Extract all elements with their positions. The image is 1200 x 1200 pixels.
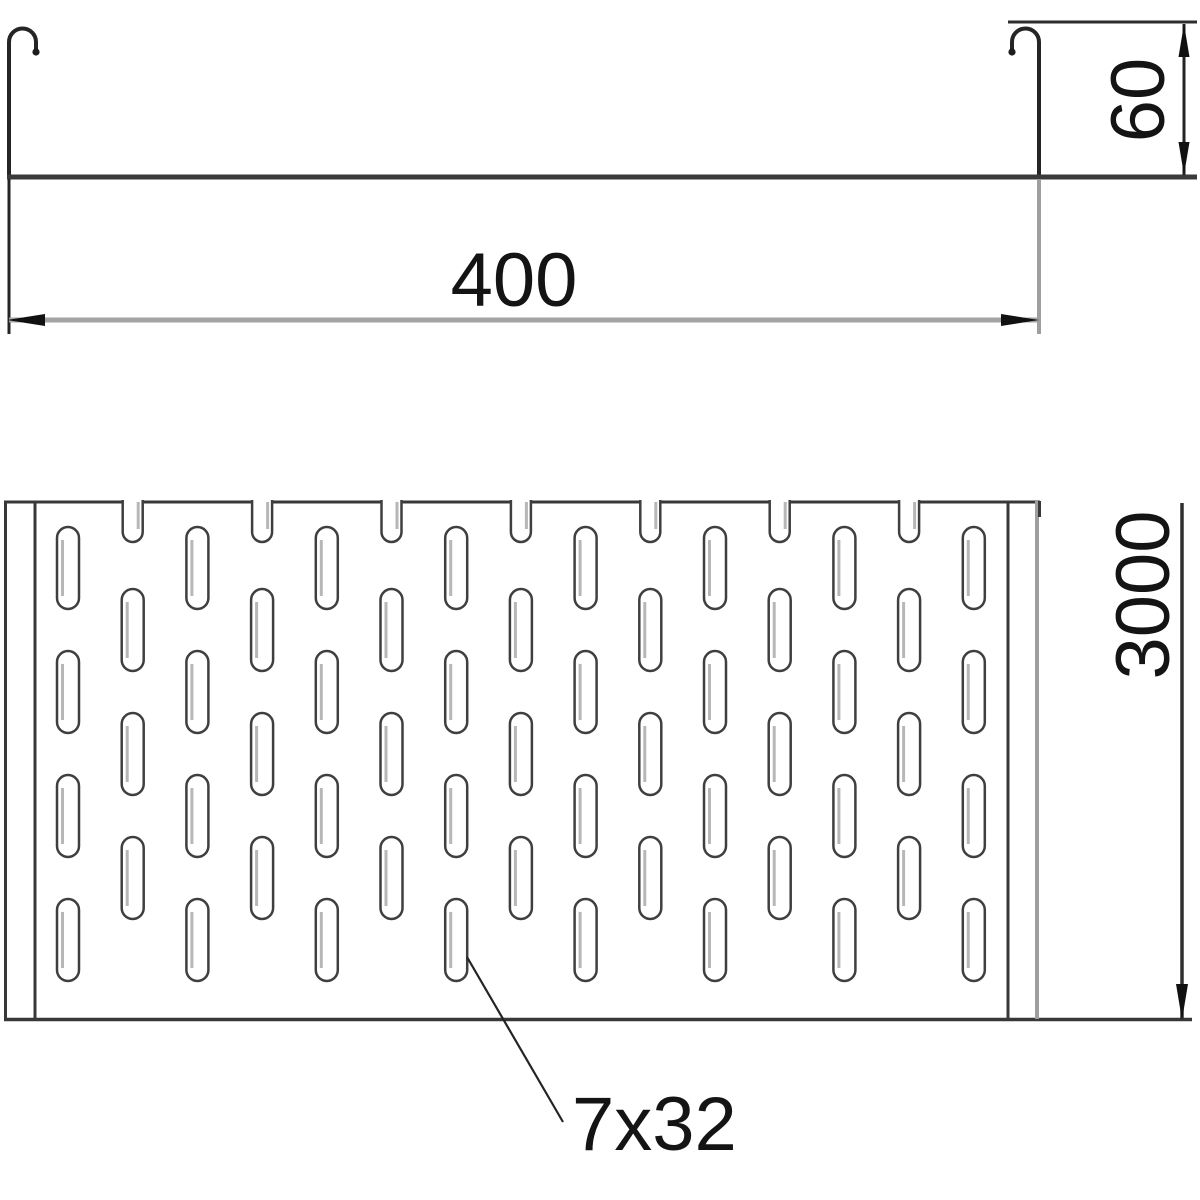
length-dimension: 3000 <box>1101 503 1188 1020</box>
slot <box>316 899 338 981</box>
slot <box>445 899 467 981</box>
slot <box>186 527 208 609</box>
slot <box>704 775 726 857</box>
slot <box>316 527 338 609</box>
plan-view <box>4 500 1192 1021</box>
slot <box>898 713 920 795</box>
slot <box>833 527 855 609</box>
length-dimension-label: 3000 <box>1101 510 1186 679</box>
slot <box>575 775 597 857</box>
slot <box>57 775 79 857</box>
width-dimension: 400 <box>7 179 1039 334</box>
slot <box>122 713 144 795</box>
slot <box>833 651 855 733</box>
width-arrow-right <box>1001 314 1039 326</box>
slot <box>251 837 273 919</box>
slot <box>57 899 79 981</box>
slot <box>769 713 791 795</box>
slot <box>186 899 208 981</box>
slot <box>381 713 403 795</box>
slot <box>704 899 726 981</box>
cross-section-view <box>7 29 1197 178</box>
slot <box>186 651 208 733</box>
tray-left-wall <box>9 29 36 178</box>
slot <box>510 837 532 919</box>
width-dimension-label: 400 <box>451 238 578 323</box>
slot <box>381 837 403 919</box>
slot <box>898 589 920 671</box>
slot <box>575 899 597 981</box>
height-dimension: 60 <box>1008 22 1197 175</box>
slot <box>963 899 985 981</box>
slot <box>445 527 467 609</box>
tray-right-wall <box>1012 29 1039 178</box>
slot <box>575 651 597 733</box>
slot <box>575 527 597 609</box>
slot <box>316 775 338 857</box>
slot <box>704 651 726 733</box>
height-dimension-label: 60 <box>1096 58 1181 143</box>
slot <box>445 651 467 733</box>
slot <box>833 899 855 981</box>
height-arrow-up <box>1179 24 1190 57</box>
slot-size-label: 7x32 <box>572 1082 737 1167</box>
slot <box>445 775 467 857</box>
slot <box>57 651 79 733</box>
slot-callout-leader-line <box>467 957 563 1122</box>
slot <box>122 837 144 919</box>
slot <box>381 589 403 671</box>
slot <box>963 651 985 733</box>
height-arrow-down <box>1179 142 1190 175</box>
slot <box>898 837 920 919</box>
slot <box>833 775 855 857</box>
length-arrow-down <box>1176 984 1188 1020</box>
tray-left-wall-bead <box>32 48 39 55</box>
slot <box>122 589 144 671</box>
perforation-pattern <box>57 500 985 981</box>
slot <box>639 589 661 671</box>
slot-size-callout: 7x32 <box>467 957 737 1167</box>
slot <box>57 527 79 609</box>
tray-right-wall-bead <box>1008 48 1015 55</box>
slot <box>704 527 726 609</box>
width-arrow-left <box>7 314 45 326</box>
slot <box>251 713 273 795</box>
slot <box>251 589 273 671</box>
slot <box>963 527 985 609</box>
slot <box>639 837 661 919</box>
slot <box>510 713 532 795</box>
slot <box>769 837 791 919</box>
slot <box>639 713 661 795</box>
technical-drawing: 60 400 3000 <box>0 0 1200 1200</box>
slot <box>769 589 791 671</box>
slot <box>316 651 338 733</box>
drawing-canvas: 60 400 3000 <box>0 0 1200 1200</box>
slot <box>963 775 985 857</box>
slot <box>186 775 208 857</box>
slot <box>510 589 532 671</box>
